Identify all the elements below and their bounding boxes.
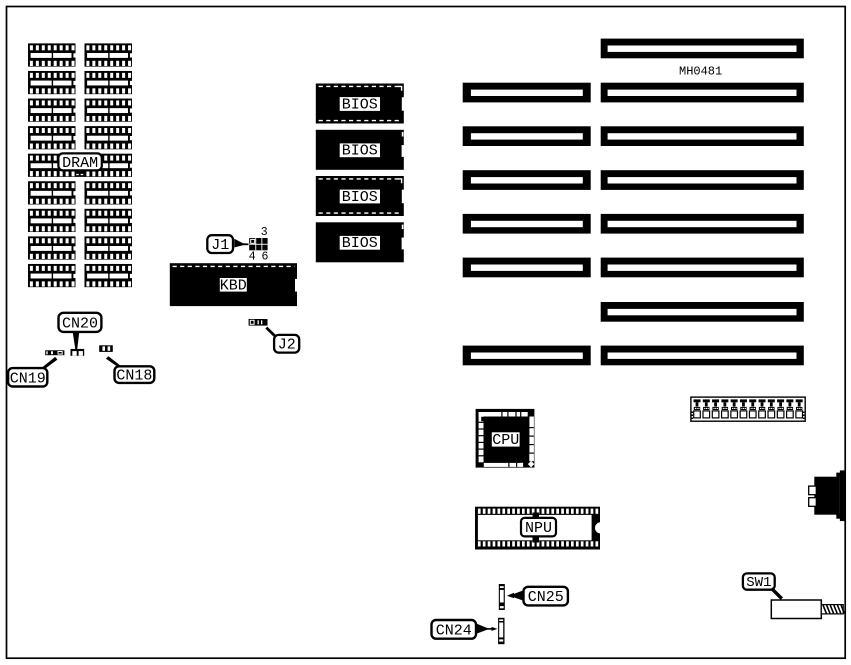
svg-text:BIOS: BIOS [342, 96, 378, 113]
svg-text:BIOS: BIOS [342, 189, 378, 206]
svg-text:J2: J2 [278, 337, 296, 354]
svg-text:6: 6 [262, 250, 269, 263]
svg-text:CN19: CN19 [10, 370, 46, 387]
svg-text:BIOS: BIOS [342, 235, 378, 252]
svg-text:KBD: KBD [220, 277, 247, 294]
svg-text:CN20: CN20 [62, 315, 98, 332]
svg-text:SW1: SW1 [746, 575, 771, 591]
svg-text:3: 3 [261, 226, 268, 239]
svg-text:BIOS: BIOS [342, 143, 378, 160]
svg-text:CN18: CN18 [116, 368, 152, 385]
svg-text:J1: J1 [211, 237, 229, 254]
svg-text:4: 4 [249, 251, 256, 264]
svg-text:NPU: NPU [525, 520, 552, 537]
svg-text:CN25: CN25 [528, 589, 564, 606]
svg-text:CPU: CPU [492, 432, 519, 449]
svg-text:DRAM: DRAM [62, 155, 98, 172]
svg-text:MH0481: MH0481 [679, 64, 722, 78]
svg-text:CN24: CN24 [436, 622, 472, 639]
